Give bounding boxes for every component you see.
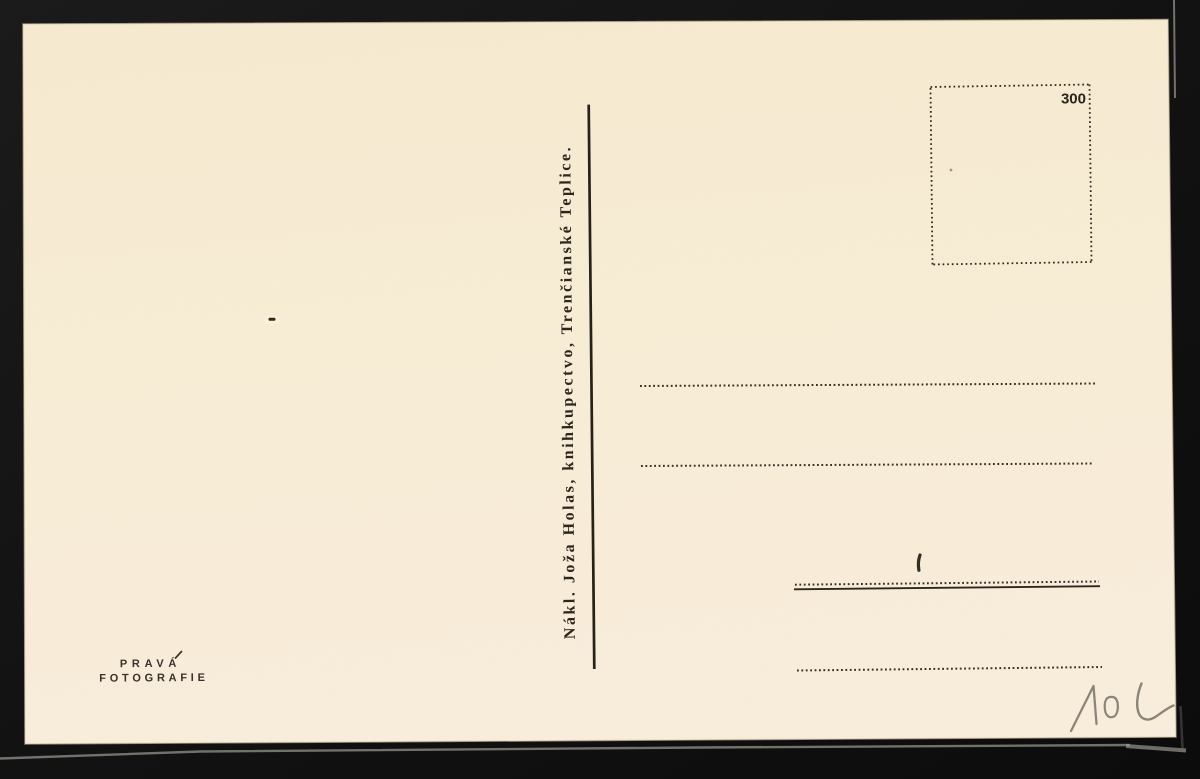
svg-text:PRAVÁ: PRAVÁ bbox=[120, 657, 181, 670]
svg-text:300: 300 bbox=[1061, 91, 1086, 108]
svg-text:FOTOGRAFIE: FOTOGRAFIE bbox=[99, 672, 209, 685]
